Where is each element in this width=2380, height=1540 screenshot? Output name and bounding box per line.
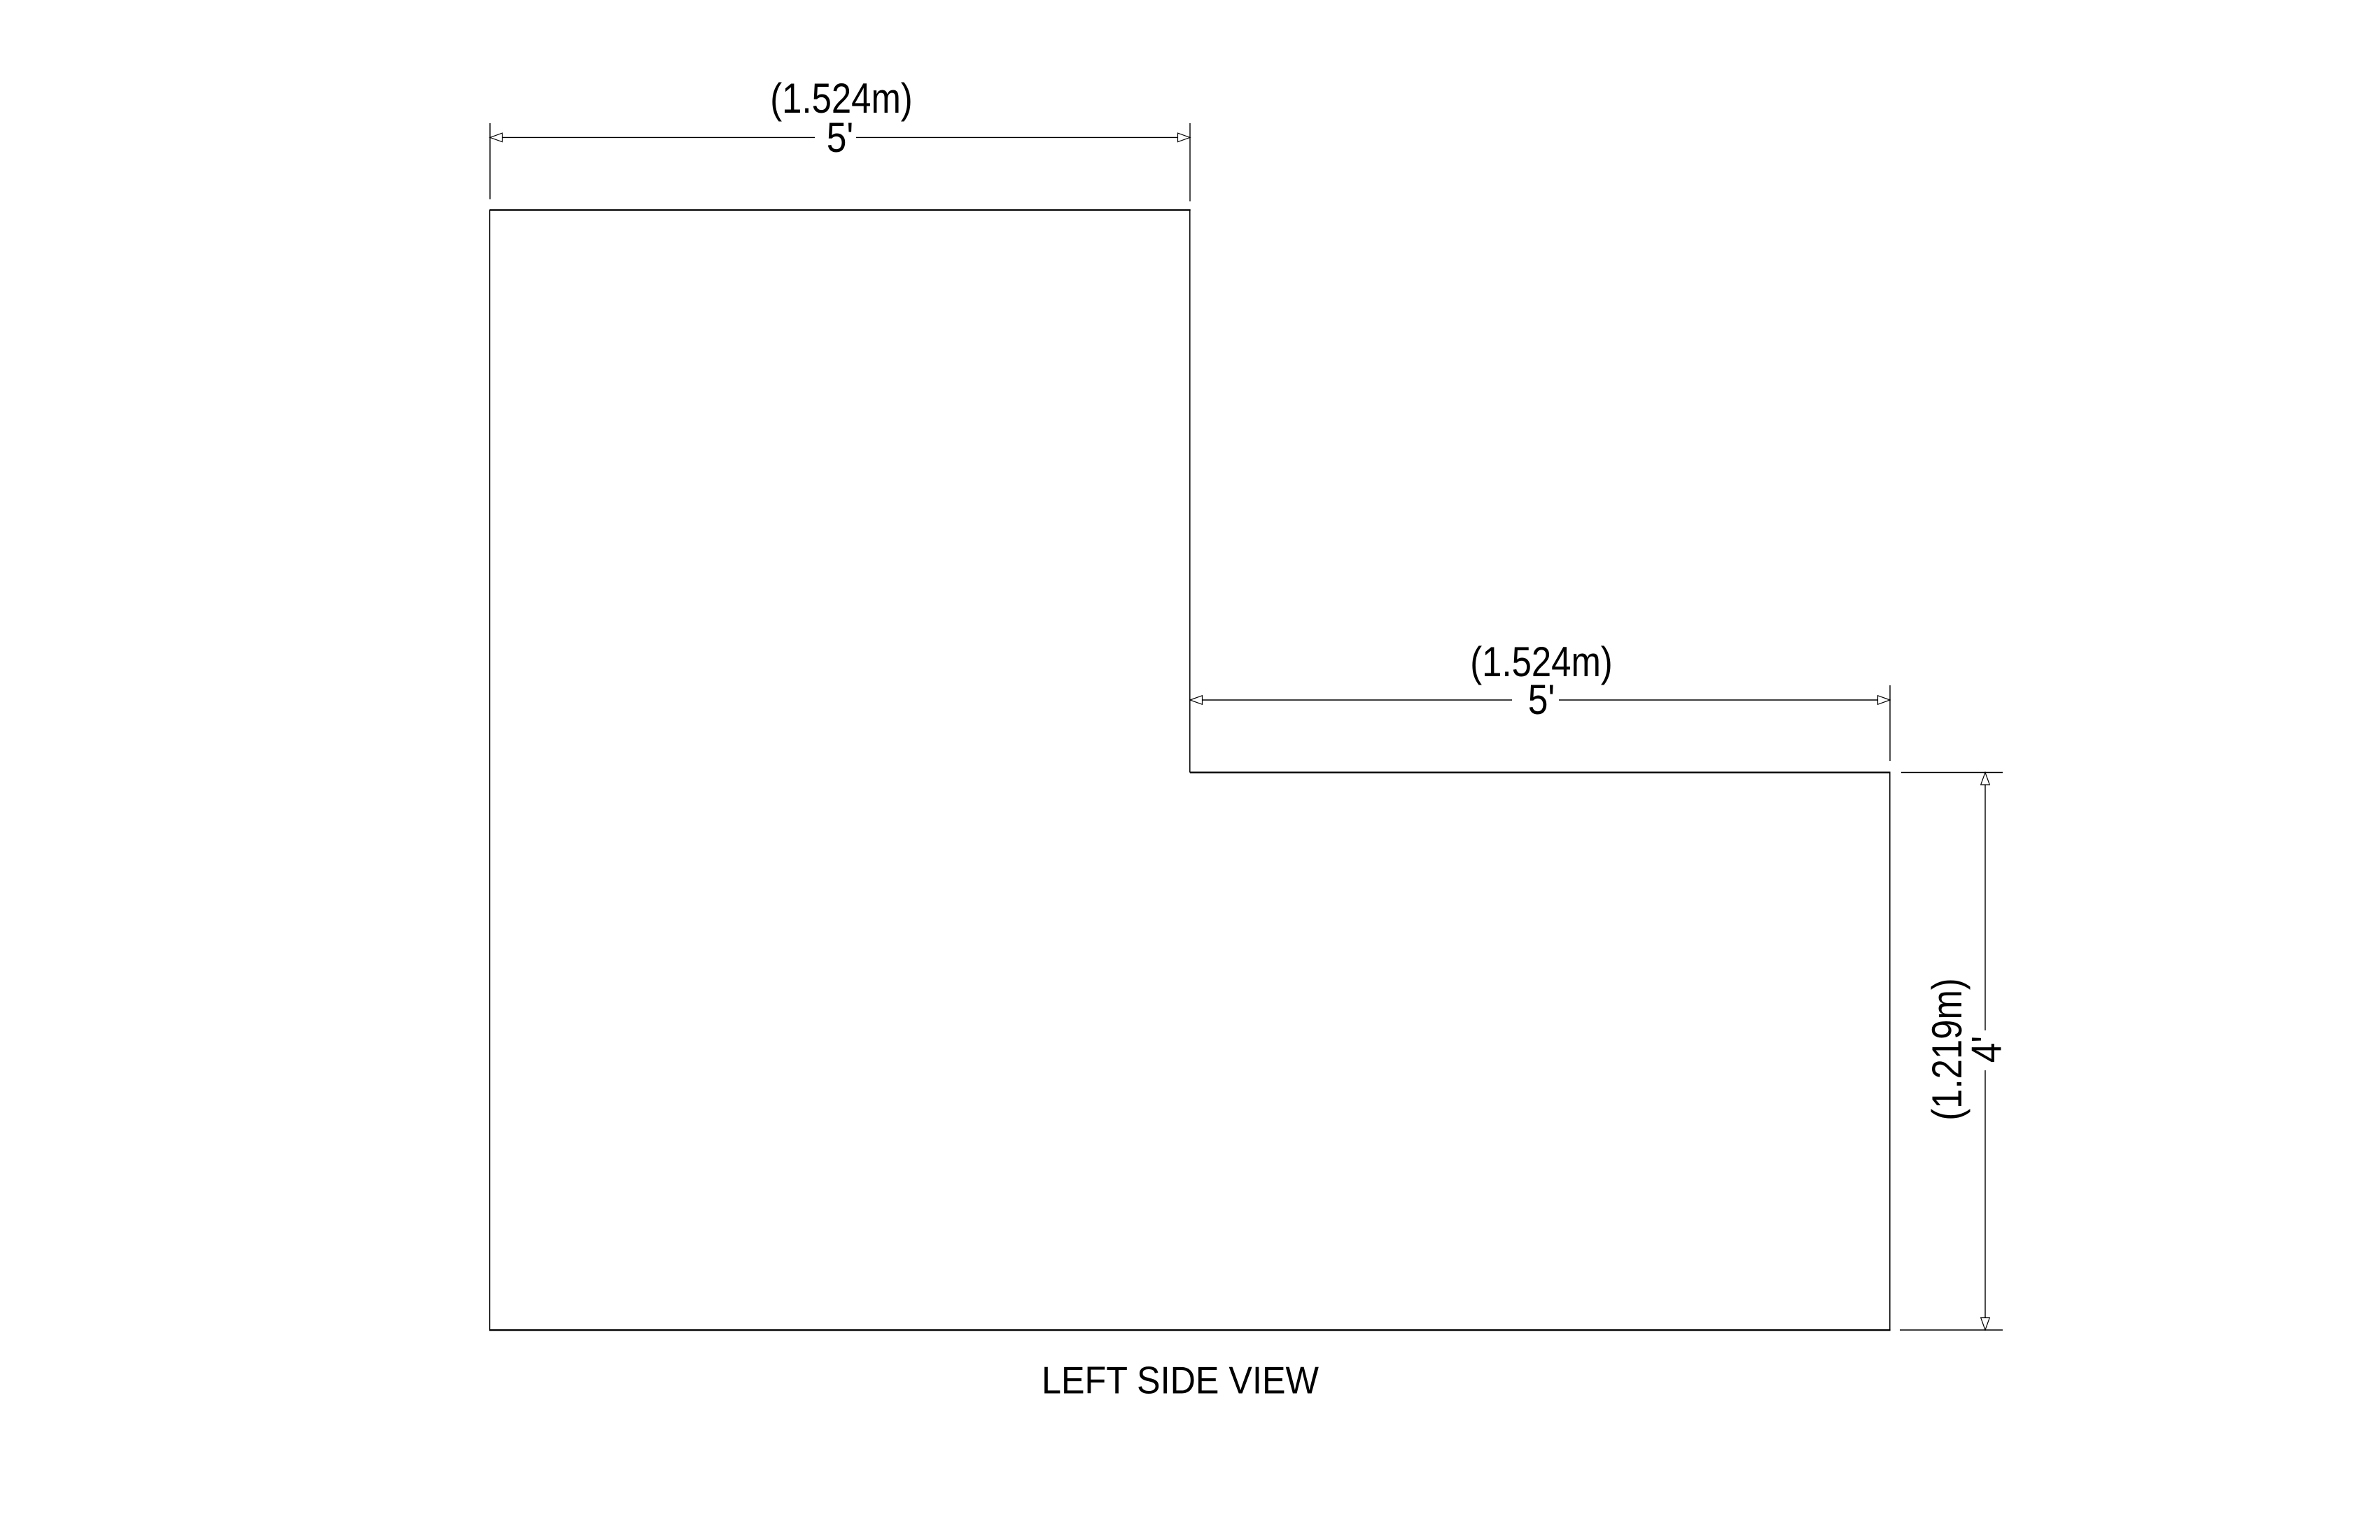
svg-text:5': 5': [1528, 676, 1555, 723]
svg-text:5': 5': [827, 114, 854, 161]
svg-text:LEFT SIDE VIEW: LEFT SIDE VIEW: [1042, 1359, 1319, 1402]
svg-text:4': 4': [1963, 1036, 2010, 1063]
